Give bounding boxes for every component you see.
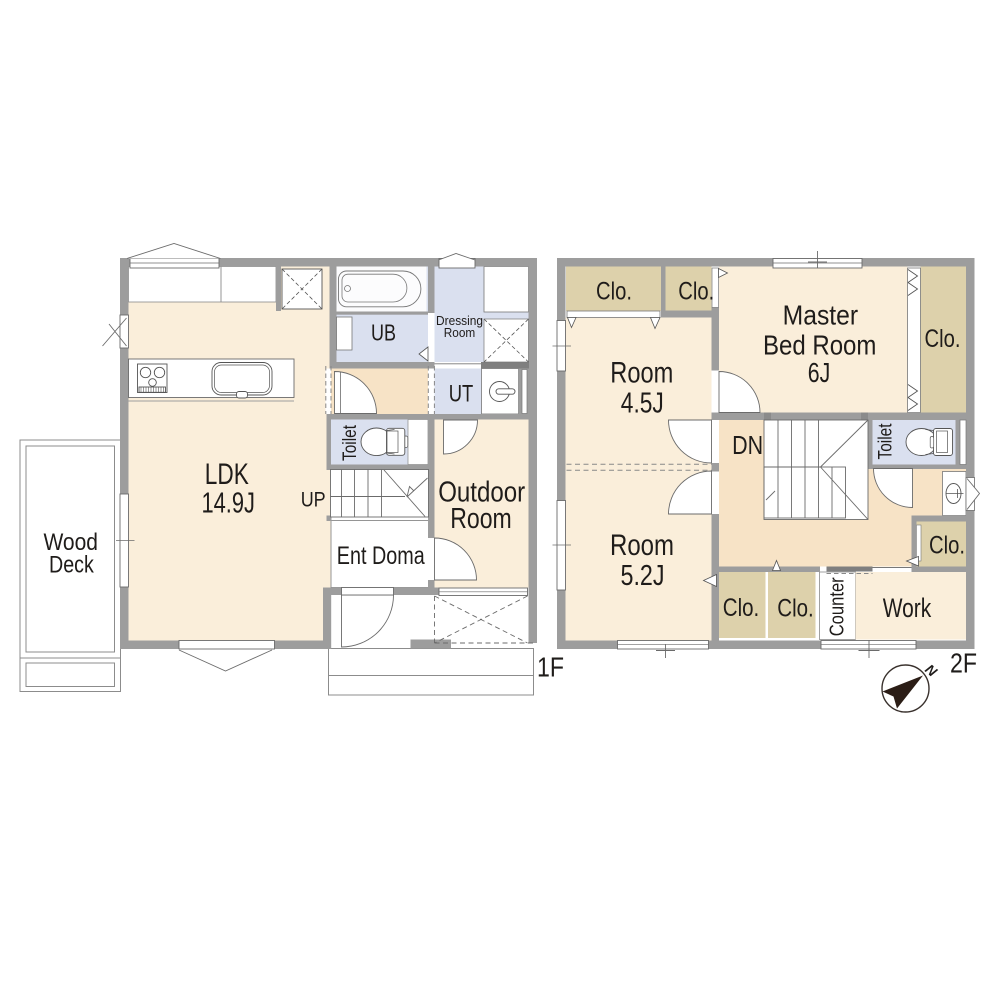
svg-text:14.9J: 14.9J: [201, 488, 255, 520]
svg-text:Clo.: Clo.: [929, 532, 965, 560]
svg-text:Room: Room: [450, 503, 512, 535]
svg-text:Clo.: Clo.: [777, 595, 814, 623]
svg-text:Room: Room: [610, 357, 673, 390]
svg-text:UP: UP: [301, 488, 326, 512]
svg-text:UT: UT: [449, 381, 474, 408]
svg-text:Ent Doma: Ent Doma: [337, 542, 425, 570]
svg-text:1F: 1F: [537, 652, 564, 683]
svg-text:Room: Room: [610, 529, 674, 562]
svg-text:4.5J: 4.5J: [621, 388, 664, 420]
svg-text:Room: Room: [444, 326, 476, 340]
svg-text:Clo.: Clo.: [925, 325, 961, 353]
svg-text:6J: 6J: [808, 357, 831, 388]
svg-text:5.2J: 5.2J: [621, 560, 665, 592]
svg-text:LDK: LDK: [205, 458, 249, 491]
svg-text:Master: Master: [783, 299, 859, 330]
svg-text:Clo.: Clo.: [596, 278, 632, 306]
svg-text:Toilet: Toilet: [339, 425, 361, 461]
svg-text:2F: 2F: [950, 648, 977, 679]
svg-text:Work: Work: [883, 593, 932, 623]
svg-text:Counter: Counter: [827, 577, 849, 636]
svg-text:Clo.: Clo.: [723, 594, 760, 622]
svg-text:Bed Room: Bed Room: [763, 329, 877, 360]
svg-text:Toilet: Toilet: [874, 423, 896, 459]
svg-text:Clo.: Clo.: [678, 278, 714, 306]
svg-text:DN: DN: [732, 430, 763, 460]
svg-text:Deck: Deck: [49, 552, 95, 579]
svg-text:UB: UB: [371, 320, 396, 346]
